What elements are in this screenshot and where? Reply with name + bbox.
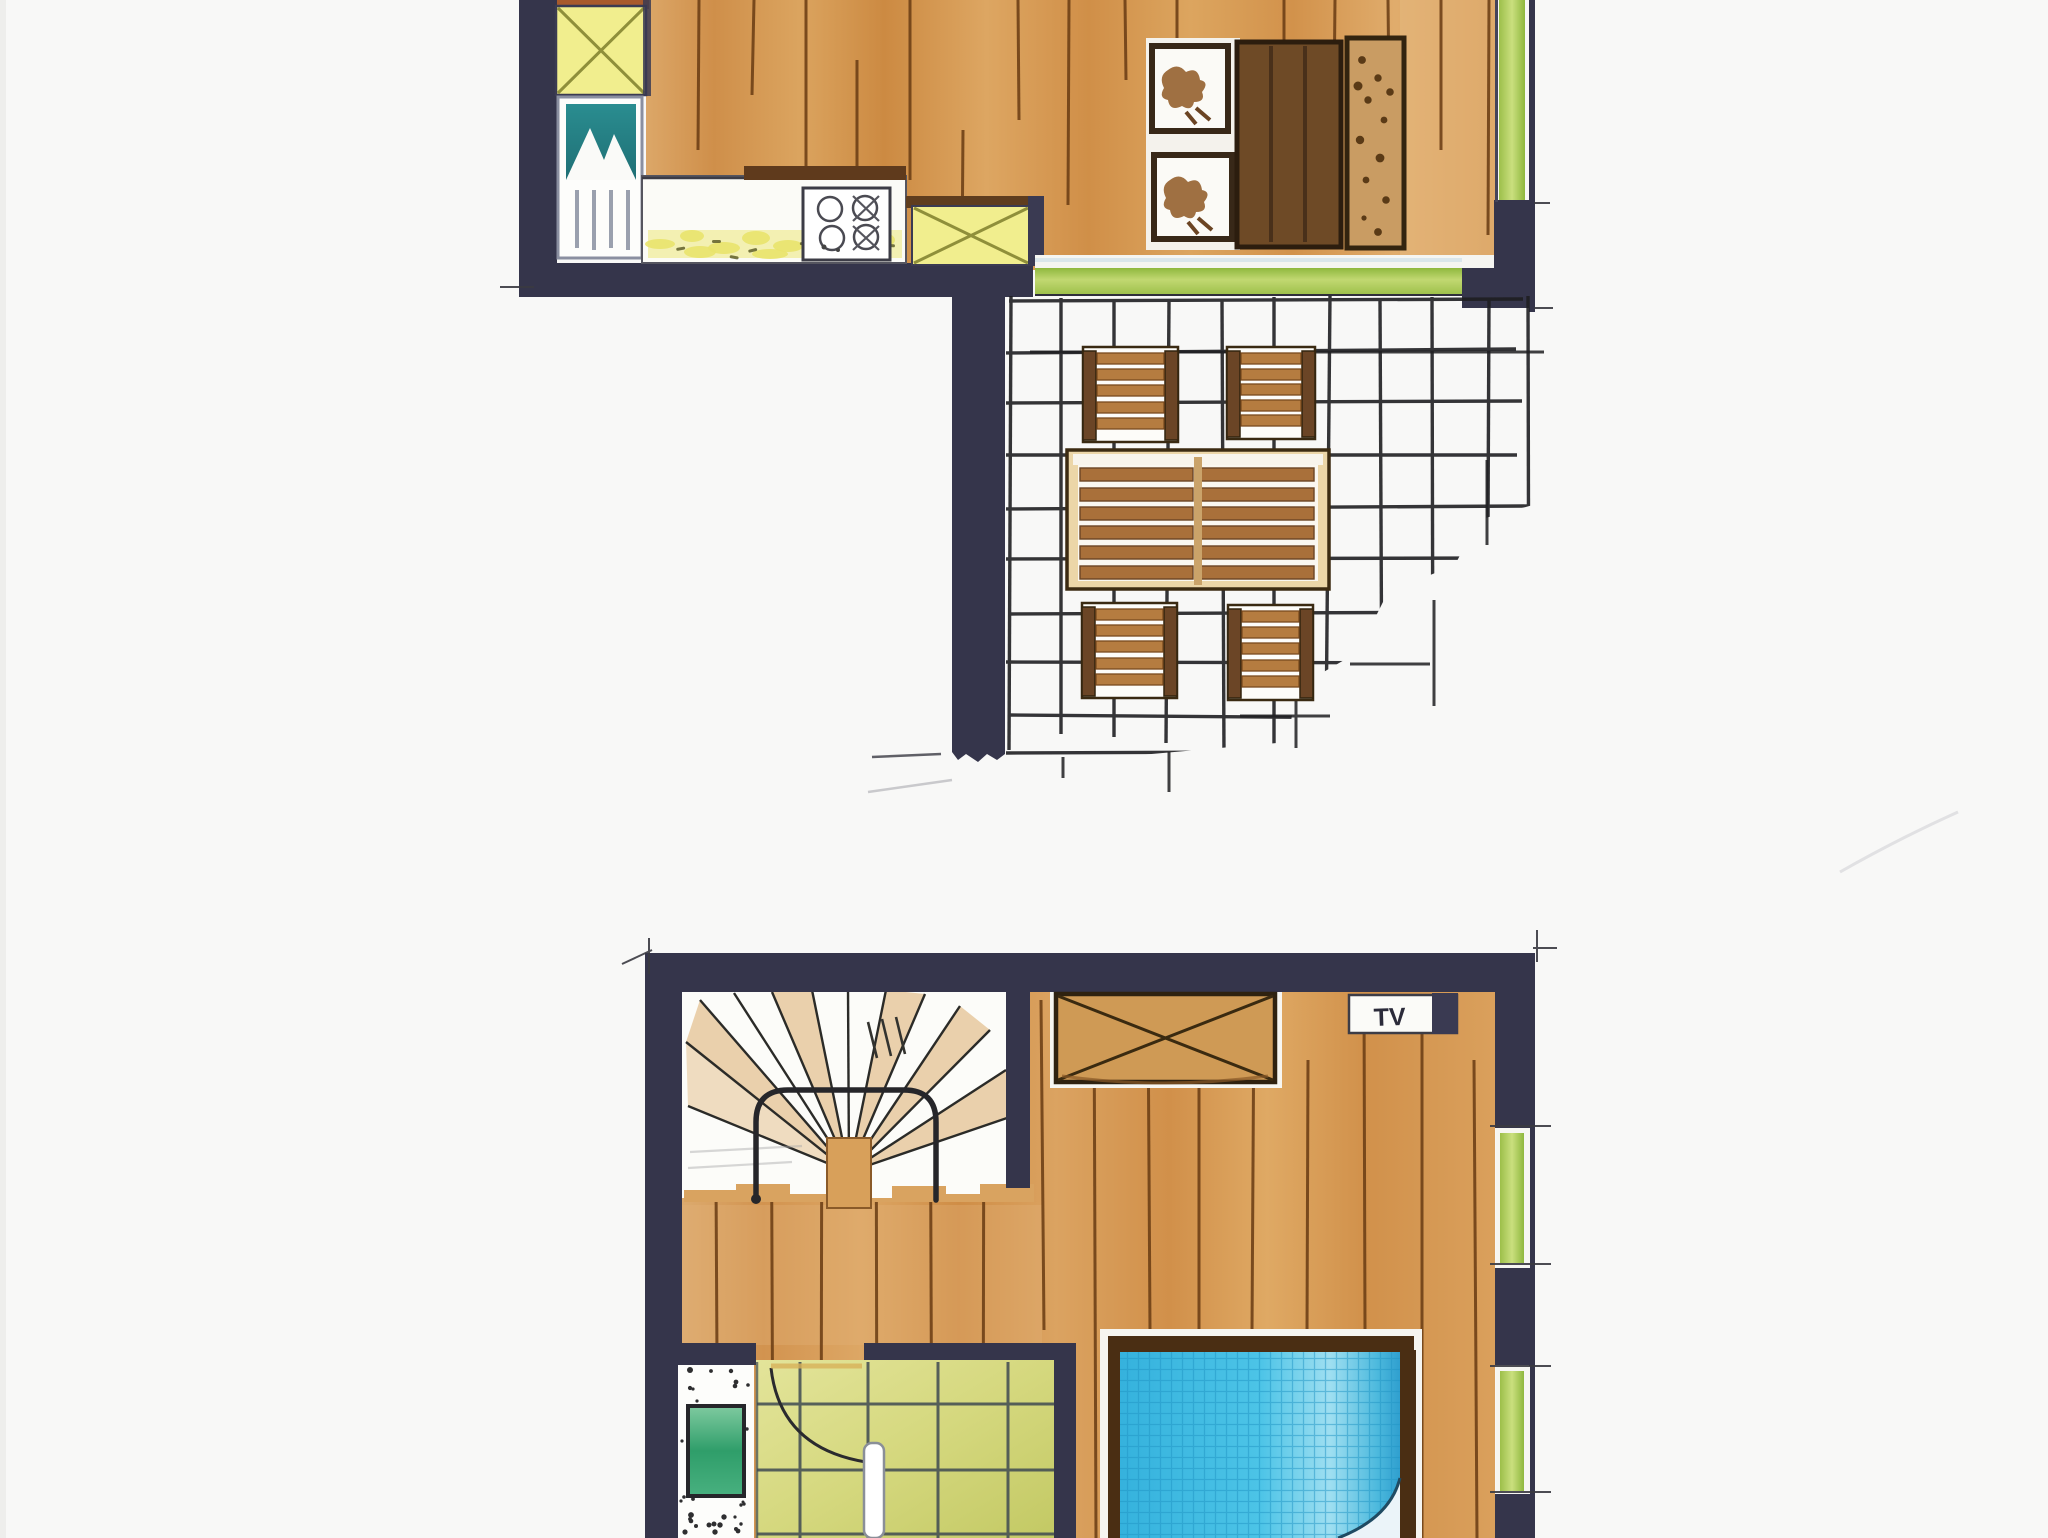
svg-text:TV: TV bbox=[1373, 1003, 1406, 1032]
